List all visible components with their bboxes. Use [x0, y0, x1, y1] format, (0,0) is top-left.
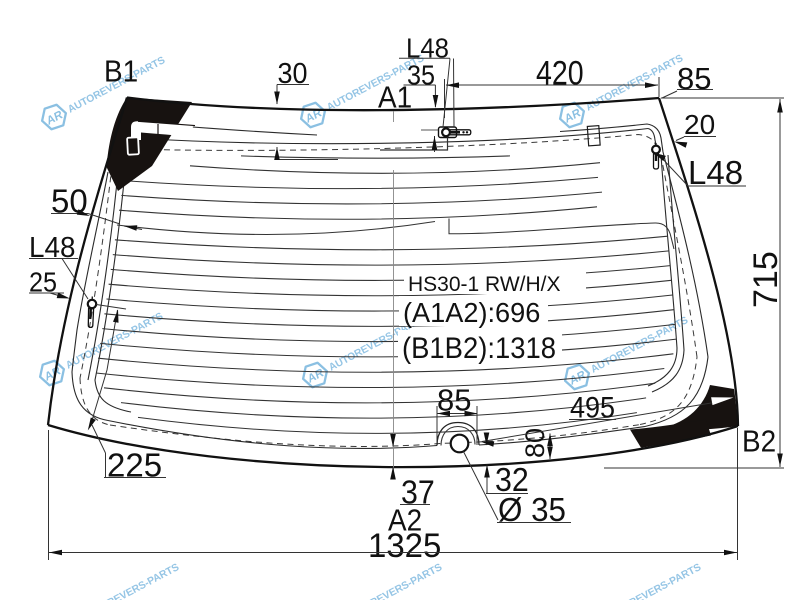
- svg-text:715: 715: [747, 251, 785, 308]
- svg-text:(A1A2):696: (A1A2):696: [403, 297, 540, 328]
- svg-text:B1: B1: [104, 54, 138, 89]
- svg-text:(B1B2):1318: (B1B2):1318: [402, 332, 556, 365]
- svg-text:85: 85: [677, 61, 711, 96]
- svg-text:420: 420: [536, 54, 584, 92]
- svg-text:HS30-1 RW/H/X: HS30-1 RW/H/X: [408, 273, 561, 296]
- svg-text:20: 20: [684, 109, 715, 140]
- svg-text:1325: 1325: [368, 528, 441, 566]
- svg-text:L48: L48: [688, 154, 743, 191]
- svg-text:B2: B2: [742, 424, 776, 459]
- svg-text:L48: L48: [29, 231, 75, 264]
